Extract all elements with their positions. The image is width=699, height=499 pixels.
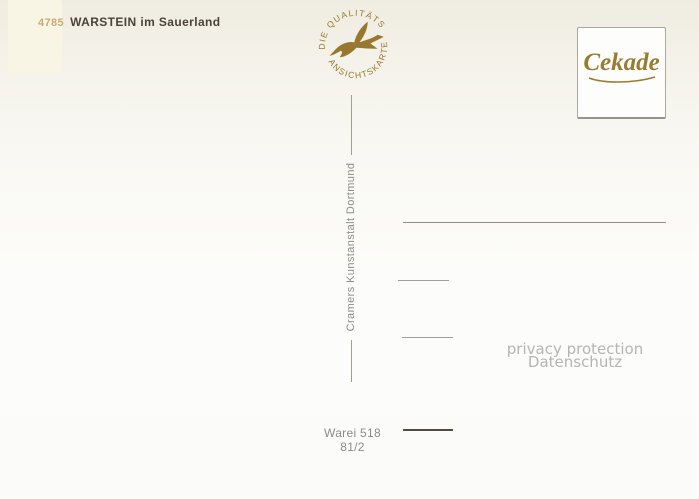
privacy-watermark-line2: Datenschutz (460, 356, 690, 369)
address-line-2 (398, 280, 449, 281)
privacy-watermark: privacy protection Datenschutz (460, 343, 690, 369)
brand-logo: Cekade (578, 50, 665, 75)
address-line-4 (403, 429, 453, 431)
publisher-imprint: Cramers Kunstanstalt Dortmund (345, 163, 357, 332)
quality-seal: DIE QUALITÄTS ANSICHTSKARTE (303, 0, 408, 100)
print-reference-code: 81/2 (295, 440, 410, 454)
postcard-back: 4785WARSTEIN im Sauerland DIE QUALITÄTS … (0, 0, 699, 499)
divider-line-bottom (351, 340, 352, 382)
page-title: WARSTEIN im Sauerland (70, 15, 220, 29)
header: 4785WARSTEIN im Sauerland (38, 15, 221, 29)
print-reference-number: Warei 518 (295, 426, 410, 440)
print-reference: Warei 518 81/2 (295, 426, 410, 454)
address-line-1 (403, 222, 666, 223)
postal-code: 4785 (38, 17, 64, 29)
address-line-3 (402, 337, 453, 338)
divider-line-top (351, 95, 352, 155)
brand-underline-flourish (587, 75, 657, 85)
stamp-box: Cekade (577, 27, 666, 119)
paper-patch (8, 0, 62, 73)
